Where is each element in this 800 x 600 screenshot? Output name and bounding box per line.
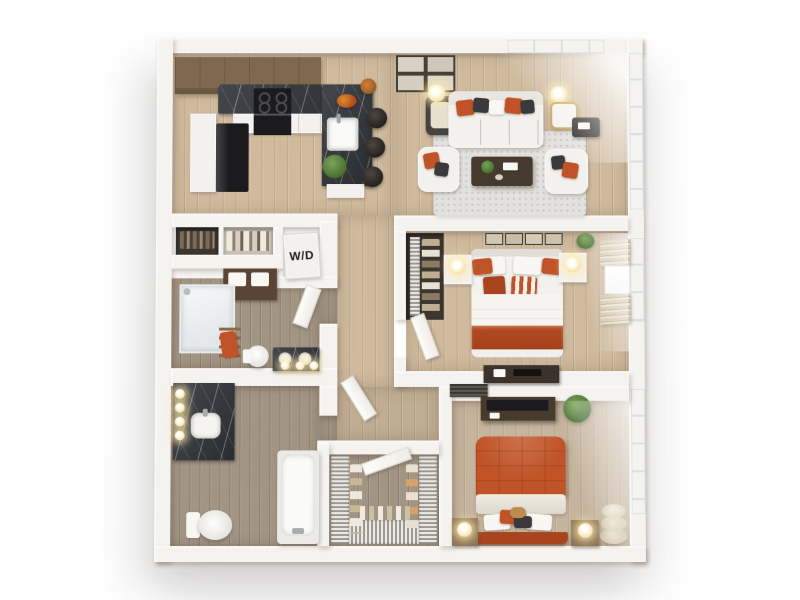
bar-stool (364, 137, 385, 158)
nightstand2-left-lamp (457, 522, 472, 537)
walkin-rack-left (331, 456, 349, 544)
wall-art-frame (396, 74, 426, 93)
wall-bedroom1-west-a (394, 231, 406, 320)
walkin-rack-right (419, 456, 437, 544)
vanity2-faucet-icon (203, 409, 208, 417)
coffee-table (471, 157, 532, 186)
sofa-seat-lines (452, 120, 539, 145)
bed2-bolster (510, 507, 526, 518)
bed2-comforter (476, 437, 566, 497)
bedroom1-closet-clothes (422, 239, 440, 314)
washer-dryer-label: W/D (289, 248, 315, 263)
sofa-pillow (520, 99, 535, 114)
bed1-wall-art (545, 233, 563, 245)
living-room-north-window (508, 40, 605, 54)
bedroom1-blinds (600, 239, 630, 267)
armchair-pillow (434, 162, 450, 177)
bedroom1-window-inner (604, 266, 630, 295)
oven-front (254, 114, 292, 135)
burner-icon (259, 102, 271, 114)
island-base (327, 184, 365, 198)
fruit-bowl (337, 94, 357, 108)
wall-bedroom1-north (394, 215, 628, 231)
wall-left (154, 38, 173, 562)
bed1-orange-throw (472, 326, 564, 352)
bedroom2-window (631, 389, 646, 514)
sofa-pillow (489, 100, 505, 115)
island-sink (327, 118, 359, 151)
bedroom1-closet-shelves (410, 237, 420, 316)
vanity1-sconce (309, 361, 318, 370)
sofa-pillow (473, 97, 490, 113)
bed1-pillow (472, 258, 493, 276)
bed2-headboard (474, 532, 568, 544)
walkin-clothes-right (406, 464, 418, 534)
vanity2-sconce (175, 431, 185, 441)
wall-bathroom2-east (319, 386, 337, 416)
sink-faucet-icon (337, 114, 341, 124)
wall-closets-south (172, 255, 283, 269)
island-plant (323, 155, 347, 178)
wall-bedroom2-west (439, 386, 452, 546)
floor-lamp-right (550, 86, 567, 103)
floor-lamp-left (428, 84, 446, 102)
bed1-wall-art (525, 233, 543, 245)
wall-hall-west-b (319, 324, 337, 371)
flower-vase (360, 79, 376, 95)
bar-stool (362, 166, 383, 187)
wall-art-frame (396, 55, 426, 73)
floor-pouf (602, 504, 626, 518)
hallway-floor (337, 215, 394, 387)
wall-bottom (154, 546, 646, 562)
burner-icon (275, 102, 287, 114)
nightstand2-right-lamp (578, 523, 593, 538)
bed1-pillow (513, 256, 542, 275)
closet1-clothes (180, 231, 215, 249)
tall-cabinet (190, 114, 216, 192)
living-room-east-window (629, 53, 644, 209)
floor-pouf (601, 516, 627, 531)
coffee-table-bowl (495, 174, 503, 180)
dresser-decor-dark (513, 369, 541, 376)
bathroom2-threshold (319, 416, 337, 443)
wall-walkin-north (317, 440, 439, 454)
storage-bin (251, 272, 269, 286)
refrigerator (216, 123, 249, 191)
corner-plant-small (576, 233, 594, 249)
bed1-wall-art (485, 233, 503, 245)
bed1-duvet (472, 294, 564, 328)
shower-head-icon (183, 288, 190, 295)
nightstand1-left-lamp (450, 259, 466, 275)
vanity2-sconce (175, 417, 185, 427)
bedroom1-blinds (601, 293, 631, 325)
bedroom2-plant (563, 395, 591, 423)
floorplan-image: W/D (0, 0, 800, 600)
nightstand1-right-lamp (565, 257, 581, 273)
vanity2-sconce (175, 403, 185, 413)
wall-kitchen-south (172, 213, 338, 227)
bed1-foot-band (472, 349, 564, 357)
bathtub-basin (281, 454, 315, 536)
vanity1-sconce (281, 361, 290, 370)
toilet1-tank (243, 349, 251, 363)
bar-stool (366, 108, 387, 129)
coffee-table-books (503, 163, 518, 171)
vanity2-sconce (175, 389, 185, 399)
apartment-unit: W/D (154, 38, 646, 562)
ac-vent (450, 384, 488, 397)
dresser-decor (494, 369, 506, 377)
armchair-pillow (561, 161, 579, 179)
orange-towel (219, 331, 238, 359)
tub-faucet-icon (292, 528, 304, 534)
bed1-wall-art (505, 233, 523, 245)
toilet2-bowl (198, 510, 232, 540)
wall-art-frame (426, 55, 456, 73)
table-books (578, 122, 590, 129)
vanity1-sconce (296, 361, 305, 370)
washer-dryer-unit: W/D (282, 232, 321, 280)
tv (487, 400, 549, 411)
coffee-table-plant (481, 161, 494, 174)
closet2-shelf-items (226, 231, 270, 251)
walkin-clothes-left (350, 464, 362, 534)
bedroom1-window (630, 238, 644, 322)
walkin-clothes-bottom (360, 506, 410, 520)
console-decor (490, 413, 500, 419)
bathroom1-threshold (319, 285, 337, 323)
